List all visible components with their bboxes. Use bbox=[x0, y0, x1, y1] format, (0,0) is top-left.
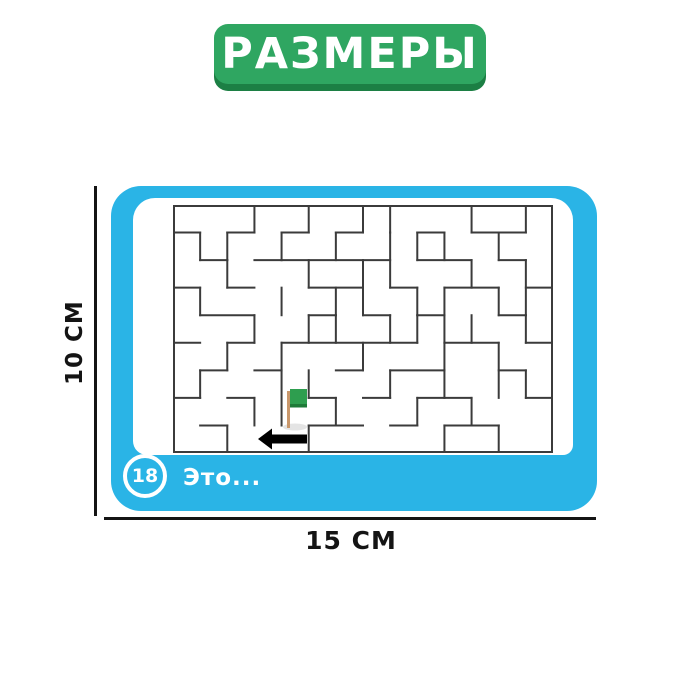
title-badge: РАЗМЕРЫ bbox=[214, 24, 486, 84]
maze-walls bbox=[173, 205, 553, 453]
width-dimension-line bbox=[104, 517, 596, 520]
card-number-badge: 18 bbox=[123, 454, 167, 498]
arrow-left-icon bbox=[258, 429, 307, 450]
maze-figure bbox=[173, 205, 553, 453]
width-dimension-label: 15 CM bbox=[291, 526, 411, 555]
card-number-label: 18 bbox=[132, 465, 158, 487]
card-caption: Это... bbox=[183, 465, 261, 491]
flag-icon bbox=[283, 389, 307, 431]
product-dimensions-infographic: РАЗМЕРЫ 10 CM 15 CM 18 Это... bbox=[0, 0, 700, 700]
height-dimension-label: 10 CM bbox=[62, 307, 90, 385]
height-dimension-line bbox=[94, 186, 97, 516]
title-badge-label: РАЗМЕРЫ bbox=[221, 29, 479, 79]
